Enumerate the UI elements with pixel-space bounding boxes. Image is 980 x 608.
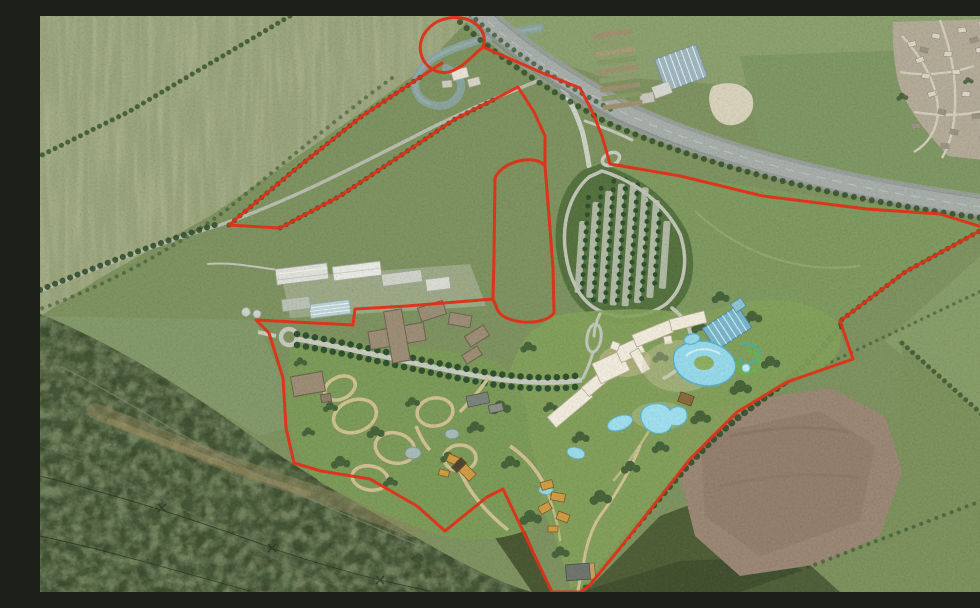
map-canvas <box>40 16 980 592</box>
aerial-masterplan-map <box>40 16 980 592</box>
